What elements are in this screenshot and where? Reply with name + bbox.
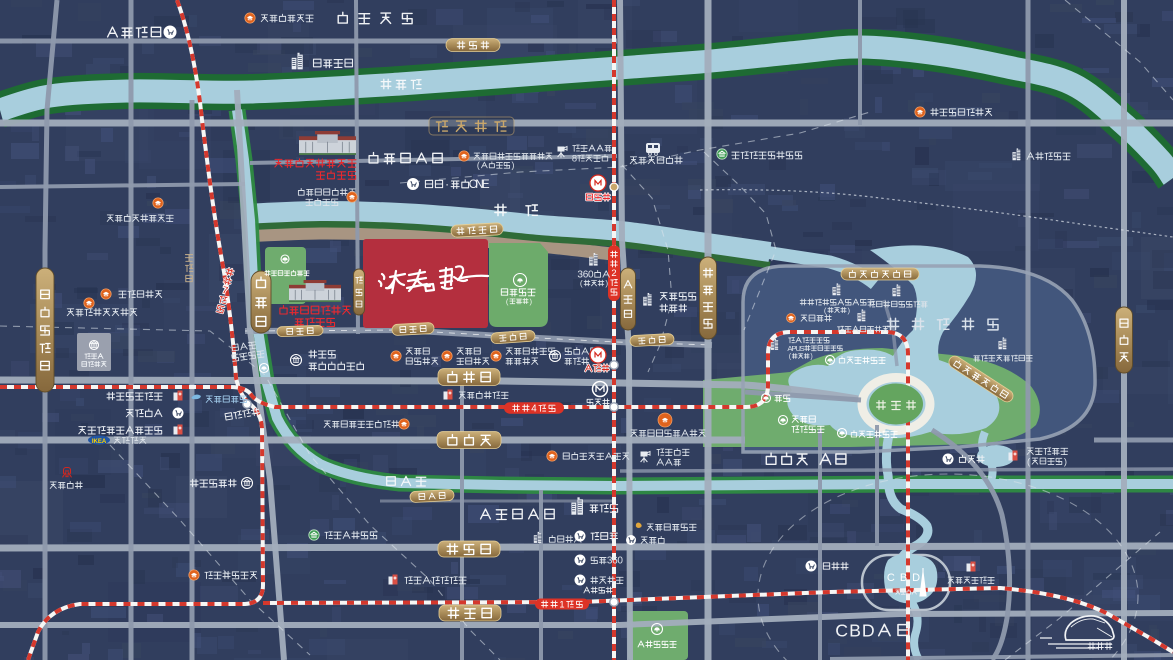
svg-text:): ) [810, 353, 812, 361]
svg-text:): ) [848, 306, 851, 315]
svg-text:CBD: CBD [887, 572, 925, 584]
svg-text:B: B [849, 620, 861, 640]
svg-text:(: ( [477, 160, 480, 170]
svg-text:2: 2 [611, 267, 616, 278]
svg-text:(: ( [506, 297, 509, 306]
svg-text:): ) [530, 297, 533, 306]
svg-text:): ) [605, 278, 608, 288]
svg-text:D: D [862, 620, 875, 640]
svg-text:4: 4 [531, 404, 537, 415]
svg-text:1: 1 [559, 599, 564, 609]
svg-text:(: ( [824, 306, 827, 315]
svg-text:): ) [512, 160, 515, 170]
svg-text:8: 8 [572, 152, 577, 163]
svg-text:(: ( [580, 278, 583, 288]
svg-text:E: E [482, 177, 490, 191]
svg-text:·: · [445, 177, 449, 191]
svg-text:0: 0 [617, 556, 623, 567]
svg-text:C: C [835, 620, 848, 640]
svg-text:0: 0 [588, 270, 594, 281]
svg-text:S: S [800, 344, 805, 353]
svg-text:IKEA: IKEA [92, 439, 107, 445]
svg-text:): ) [1064, 455, 1067, 466]
